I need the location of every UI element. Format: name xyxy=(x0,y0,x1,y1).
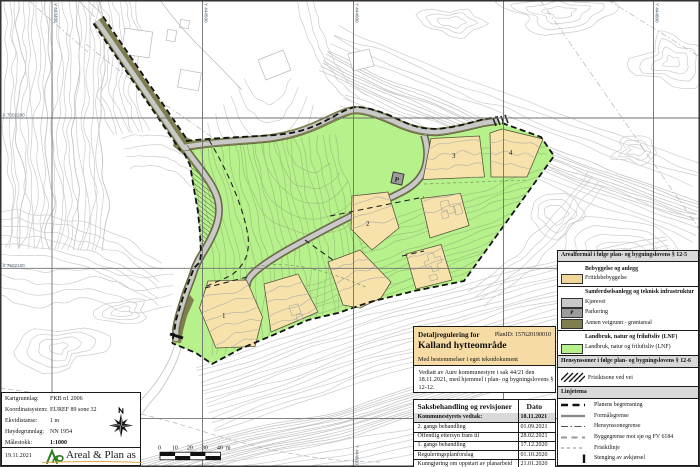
svg-text:Y 444600: Y 444600 xyxy=(355,445,360,465)
svg-text:30: 30 xyxy=(202,446,208,452)
svg-text:10: 10 xyxy=(172,446,178,452)
svg-text:4: 4 xyxy=(509,149,513,157)
svg-text:40: 40 xyxy=(217,446,223,452)
svg-text:m: m xyxy=(226,446,231,452)
svg-text:Y 444800: Y 444800 xyxy=(655,3,660,23)
svg-text:2: 2 xyxy=(366,220,370,228)
svg-text:20: 20 xyxy=(187,446,193,452)
svg-text:3: 3 xyxy=(452,152,456,160)
svg-text:Y 444400: Y 444400 xyxy=(53,3,58,23)
svg-text:X 7502100: X 7502100 xyxy=(3,263,26,268)
svg-text:Y 444600: Y 444600 xyxy=(355,3,360,23)
svg-text:X 7502200: X 7502200 xyxy=(3,113,26,118)
svg-text:Y 444500: Y 444500 xyxy=(204,3,209,23)
svg-text:0: 0 xyxy=(158,446,161,452)
svg-text:1: 1 xyxy=(222,312,226,320)
